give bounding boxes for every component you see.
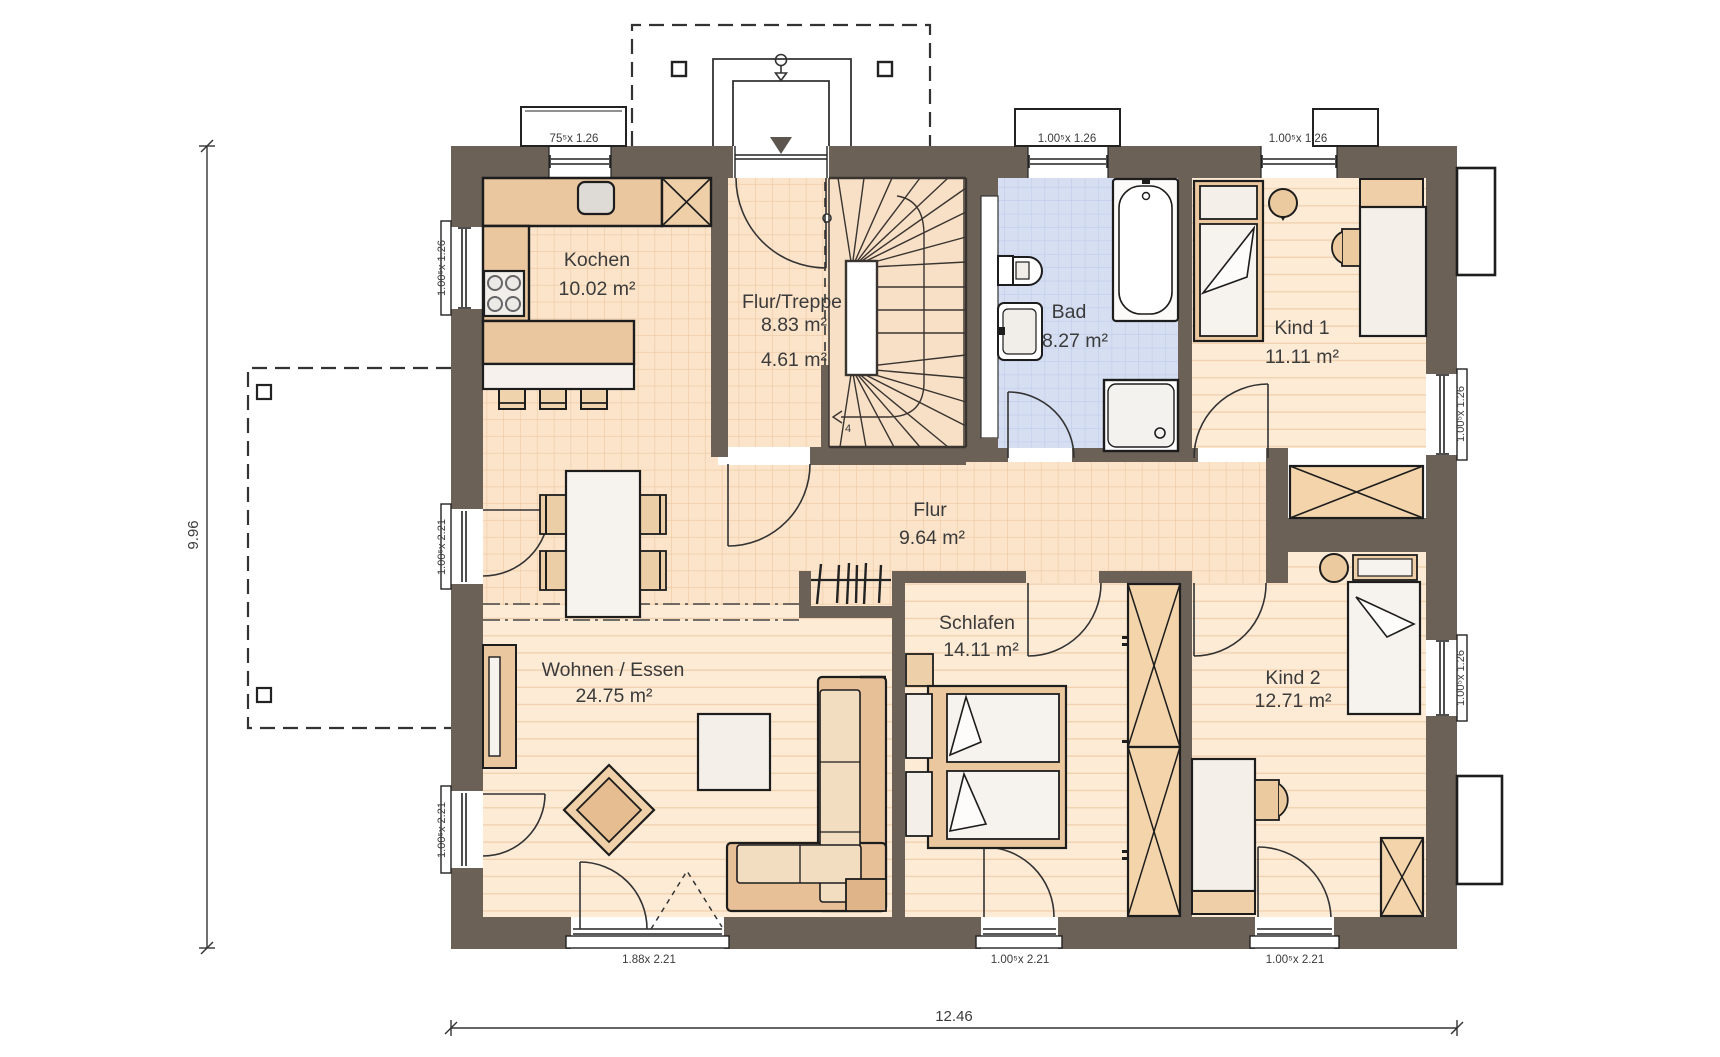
svg-text:Kind 1: Kind 1 (1274, 317, 1329, 339)
svg-text:Flur: Flur (913, 499, 947, 521)
svg-text:Flur/Treppe: Flur/Treppe (742, 291, 842, 313)
svg-text:1.00⁵x 2.21: 1.00⁵x 2.21 (991, 954, 1049, 966)
svg-text:1.88x 2.21: 1.88x 2.21 (622, 954, 676, 966)
svg-text:1.00⁵x 2.21: 1.00⁵x 2.21 (1266, 954, 1324, 966)
svg-text:1.00⁵x 1.26: 1.00⁵x 1.26 (436, 240, 448, 296)
svg-text:1.00⁵x 2.21: 1.00⁵x 2.21 (436, 802, 448, 858)
svg-text:9.96: 9.96 (185, 520, 202, 549)
svg-text:4.61 m²: 4.61 m² (761, 349, 828, 371)
svg-text:12.71 m²: 12.71 m² (1255, 690, 1332, 712)
svg-text:11.11 m²: 11.11 m² (1265, 346, 1340, 368)
svg-text:1.00⁵x 1.26: 1.00⁵x 1.26 (1455, 650, 1467, 706)
svg-text:9.64 m²: 9.64 m² (899, 527, 966, 549)
svg-text:Kochen: Kochen (564, 249, 630, 271)
svg-text:24.75 m²: 24.75 m² (576, 685, 653, 707)
svg-text:75⁵x 1.26: 75⁵x 1.26 (550, 133, 599, 145)
svg-text:8.27 m²: 8.27 m² (1042, 330, 1109, 352)
svg-text:10.02 m²: 10.02 m² (559, 278, 636, 300)
svg-text:1.00⁵x 1.26: 1.00⁵x 1.26 (1455, 386, 1467, 442)
svg-text:Schlafen: Schlafen (939, 612, 1015, 634)
svg-text:Wohnen / Essen: Wohnen / Essen (542, 659, 685, 681)
svg-text:1.00⁵x 1.26: 1.00⁵x 1.26 (1038, 133, 1096, 145)
svg-text:14.11 m²: 14.11 m² (943, 639, 1019, 661)
svg-text:1.00⁵x 1.26: 1.00⁵x 1.26 (1269, 133, 1327, 145)
svg-text:4: 4 (845, 423, 851, 435)
svg-text:1.00⁵x 2.21: 1.00⁵x 2.21 (436, 519, 448, 575)
svg-text:Bad: Bad (1052, 301, 1087, 323)
svg-text:8.83 m²: 8.83 m² (761, 314, 828, 336)
svg-text:Kind 2: Kind 2 (1265, 667, 1320, 689)
svg-text:12.46: 12.46 (935, 1008, 973, 1025)
